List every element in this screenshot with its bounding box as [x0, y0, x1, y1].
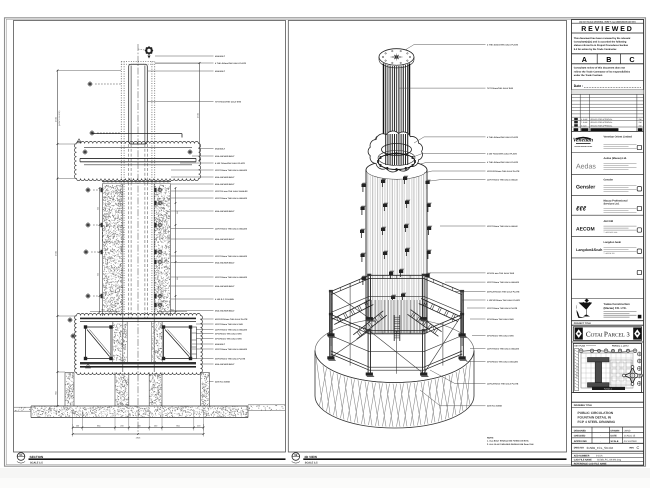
svg-text:SCALE 1:5: SCALE 1:5 — [305, 461, 318, 464]
svg-text:(VERIFY ON SITE): (VERIFY ON SITE) — [58, 110, 61, 126]
svg-text:SECTION: SECTION — [30, 455, 45, 459]
svg-text:02: 02 — [294, 453, 298, 457]
svg-text:500: 500 — [176, 277, 179, 280]
svg-text:500: 500 — [176, 211, 179, 214]
svg-text:500: 500 — [97, 273, 100, 276]
svg-text:01: 01 — [19, 453, 23, 457]
svg-text:3D VIEW: 3D VIEW — [304, 455, 317, 459]
svg-text:SCALE 1:5: SCALE 1:5 — [30, 461, 43, 464]
svg-text:500: 500 — [97, 207, 100, 210]
